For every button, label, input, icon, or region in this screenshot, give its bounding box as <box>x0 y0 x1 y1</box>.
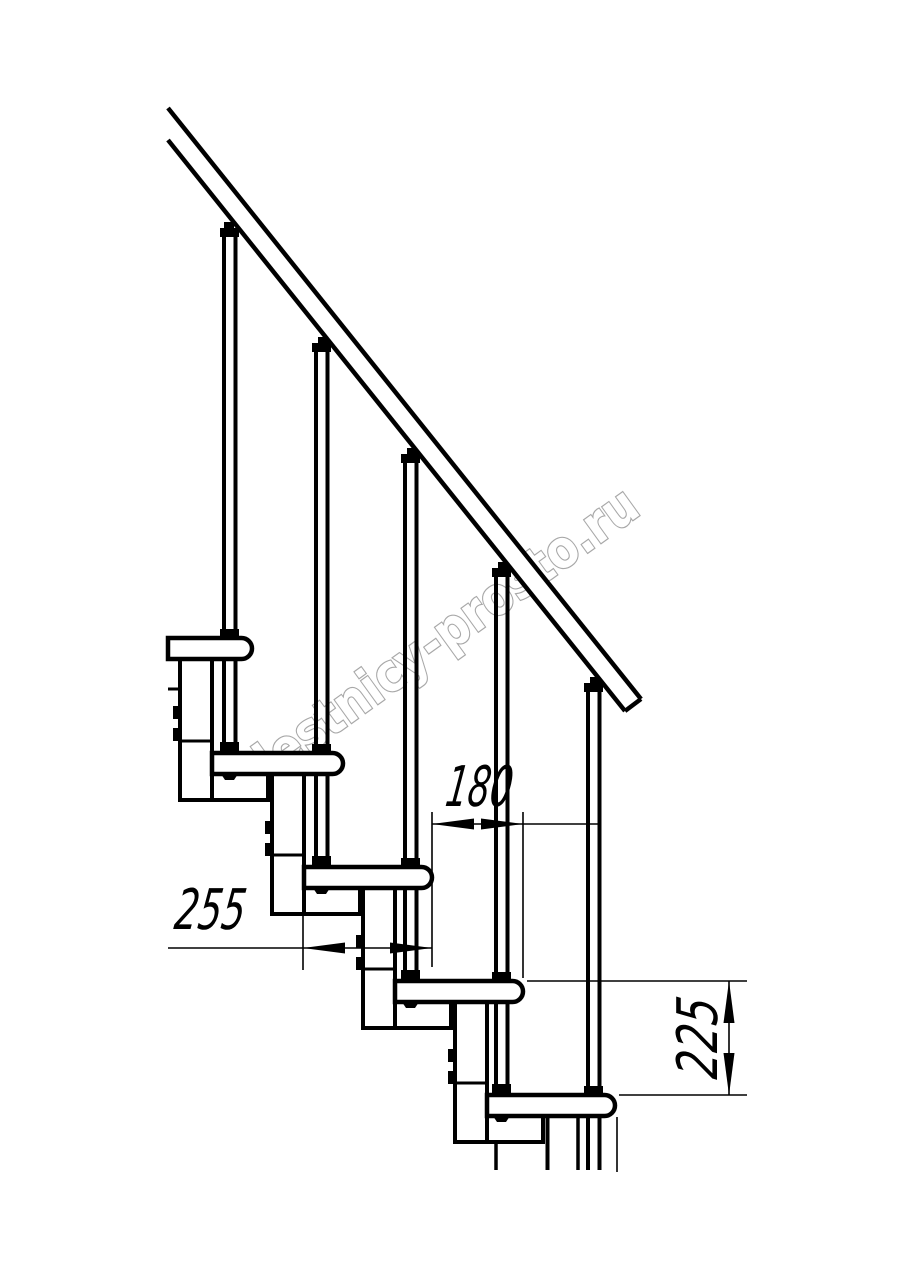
baluster-1 <box>220 237 239 638</box>
step-tread-4 <box>395 981 523 1002</box>
baluster-cap-nub <box>590 677 600 684</box>
step-tread-5 <box>487 1095 615 1116</box>
baluster-5 <box>584 692 603 1095</box>
wall-plate <box>363 886 395 1028</box>
wall-plate <box>272 772 304 914</box>
wall-tab <box>356 957 363 970</box>
wall-plate <box>180 657 212 800</box>
tube-connector <box>401 970 420 979</box>
baluster-cap-nub <box>498 562 508 569</box>
baluster-cap <box>312 343 331 352</box>
baluster-base <box>401 858 420 867</box>
staircase-side-view-drawing: lestnicy-prosto.ru <box>0 0 914 1280</box>
baluster-cap-nub <box>318 337 328 344</box>
wall-tab <box>448 1049 455 1062</box>
baluster-base <box>312 744 331 753</box>
baluster-base <box>584 1086 603 1095</box>
baluster-cap-nub <box>224 222 234 229</box>
baluster-base <box>492 972 511 981</box>
tube-connector <box>312 856 331 865</box>
staircase-drawing-page: lestnicy-prosto.ru <box>0 0 914 1280</box>
wall-tab <box>173 728 180 741</box>
wall-tab <box>265 821 272 834</box>
baluster-cap <box>492 568 511 577</box>
baluster-cap-nub <box>407 448 417 455</box>
baluster-cap <box>401 454 420 463</box>
dimension-rise: 225 <box>527 981 747 1095</box>
step-tread-1 <box>168 638 252 659</box>
wall-tab <box>265 843 272 856</box>
wall-tab <box>173 706 180 719</box>
arrowhead-left <box>303 943 345 954</box>
wall-tab <box>356 935 363 948</box>
tube-connector <box>492 1084 511 1093</box>
support-module-3 <box>356 886 451 1028</box>
step-tread-3 <box>304 867 432 888</box>
wall-tab <box>448 1071 455 1084</box>
step-tread-2 <box>212 753 343 774</box>
support-module-2 <box>265 772 360 914</box>
arrowhead-left <box>432 819 474 830</box>
dimension-going-label: 180 <box>442 755 517 820</box>
arrowhead-right <box>390 943 432 954</box>
tube-connector <box>220 742 239 751</box>
baluster-cap <box>584 683 603 692</box>
dimension-rise-label: 225 <box>666 993 731 1082</box>
arrowhead-right <box>481 819 523 830</box>
dimension-going: 180 <box>432 755 598 978</box>
support-module-1 <box>173 657 268 800</box>
baluster-base <box>220 629 239 638</box>
wall-plate <box>455 1000 487 1142</box>
dimension-tread-depth-label: 255 <box>171 878 250 943</box>
baluster-cap <box>220 228 239 237</box>
support-module-4 <box>448 1000 543 1142</box>
